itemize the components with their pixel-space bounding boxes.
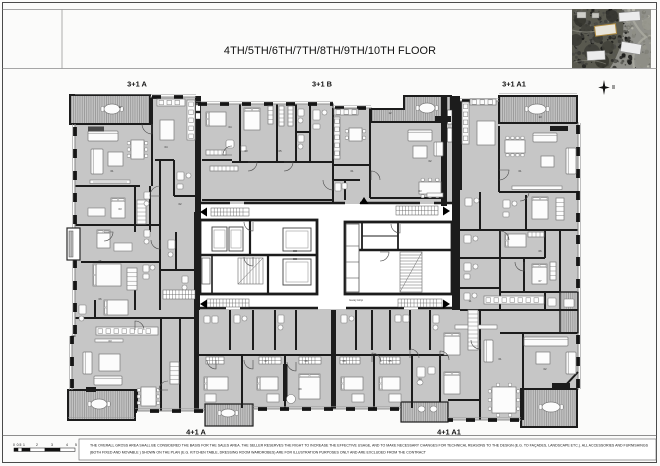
svg-text:04: 04: [418, 377, 422, 381]
svg-text:0.5: 0.5: [17, 443, 22, 447]
svg-text:0: 0: [13, 443, 15, 447]
svg-text:4: 4: [66, 443, 68, 447]
svg-text:2: 2: [36, 443, 38, 447]
svg-text:06: 06: [98, 297, 102, 301]
svg-text:06: 06: [538, 249, 542, 253]
svg-text:13: 13: [538, 115, 542, 119]
svg-text:05: 05: [278, 149, 282, 153]
svg-text:07: 07: [538, 279, 542, 283]
svg-text:03: 03: [118, 207, 122, 211]
svg-text:03: 03: [418, 189, 422, 193]
svg-text:3+1 B: 3+1 B: [312, 80, 332, 89]
svg-text:12: 12: [388, 111, 392, 115]
svg-text:02: 02: [543, 367, 547, 371]
svg-text:12: 12: [118, 105, 122, 109]
svg-text:Garaj Girişi: Garaj Girişi: [349, 298, 363, 302]
svg-text:05: 05: [98, 259, 102, 263]
svg-text:05: 05: [388, 359, 392, 363]
svg-text:01: 01: [350, 169, 354, 173]
svg-text:09: 09: [298, 387, 302, 391]
svg-text:08: 08: [342, 359, 346, 363]
svg-text:08: 08: [304, 359, 308, 363]
svg-text:02: 02: [428, 159, 432, 163]
svg-text:01: 01: [498, 357, 502, 361]
svg-text:11: 11: [469, 299, 472, 303]
svg-text:1: 1: [23, 443, 25, 447]
svg-text:5: 5: [75, 443, 77, 447]
svg-text:THE OVERALL GROSS AREA SHALL B: THE OVERALL GROSS AREA SHALL BE CONSIDER…: [90, 444, 649, 448]
svg-text:07: 07: [264, 359, 268, 363]
svg-text:(BOTH FIXED AND MOVABLE ) SHOW: (BOTH FIXED AND MOVABLE ) SHOWN ON THE P…: [90, 451, 427, 455]
svg-text:04: 04: [228, 125, 232, 129]
svg-text:02: 02: [178, 202, 182, 206]
svg-text:3: 3: [51, 443, 53, 447]
svg-text:04: 04: [164, 145, 168, 149]
svg-text:3+1 A1: 3+1 A1: [502, 80, 526, 89]
svg-text:3+1 A: 3+1 A: [127, 80, 147, 89]
svg-text:01: 01: [110, 169, 114, 173]
svg-text:03: 03: [244, 149, 248, 153]
svg-text:01: 01: [518, 169, 522, 173]
svg-text:03: 03: [108, 339, 112, 343]
svg-text:4TH/5TH/6TH/7TH/8TH/9TH/10TH F: 4TH/5TH/6TH/7TH/8TH/9TH/10TH FLOOR: [224, 45, 436, 57]
